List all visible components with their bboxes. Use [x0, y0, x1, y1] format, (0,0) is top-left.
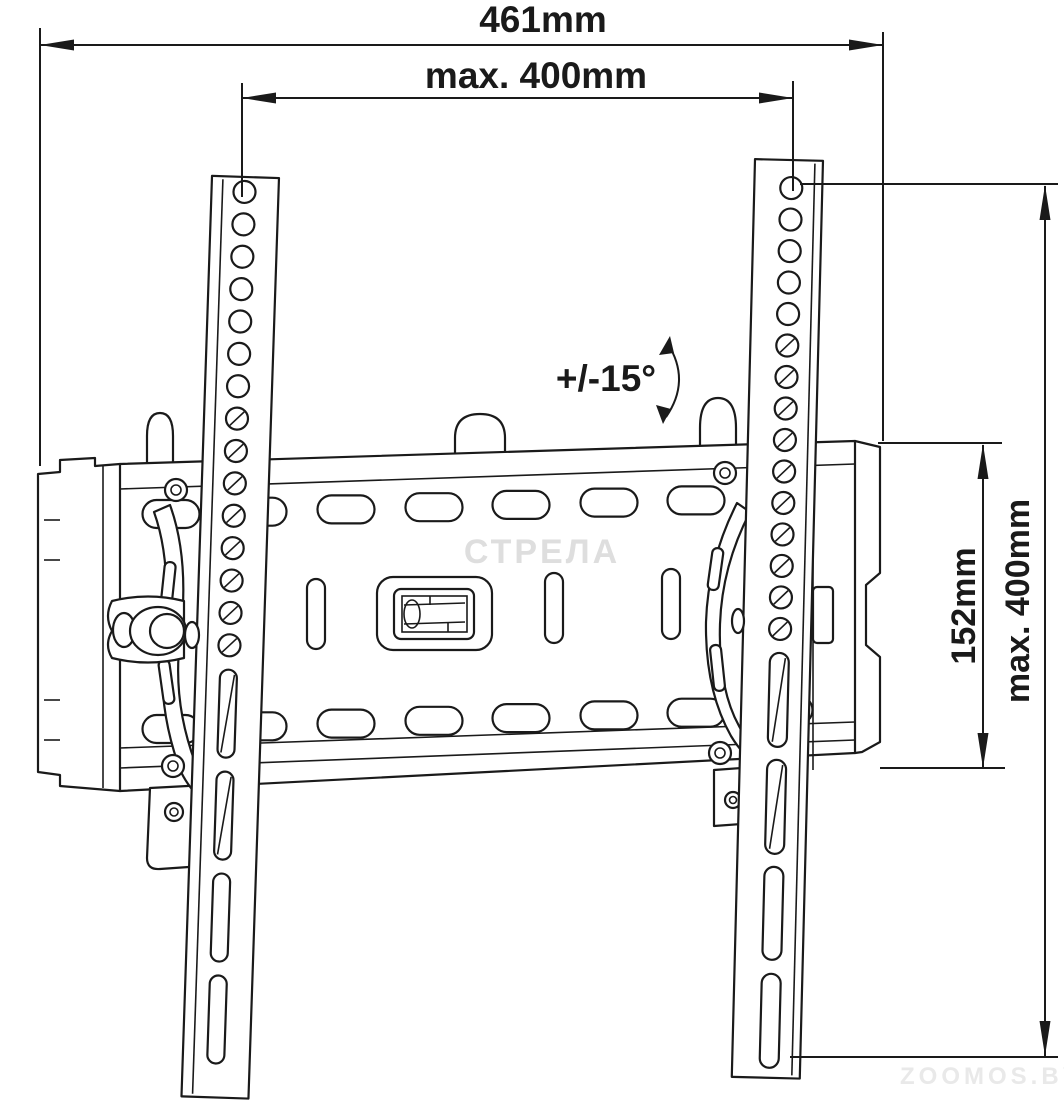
vesa-adapter-block — [377, 577, 492, 650]
hole-span-dimension: max. 400mm — [242, 55, 793, 197]
tilt-angle-label: +/-15° — [556, 358, 656, 399]
top-width-label: 461mm — [479, 0, 607, 40]
plate-height-dimension: 152mm — [878, 443, 1005, 768]
right-ear — [700, 398, 736, 448]
technical-drawing-canvas: СТРЕЛА — [0, 0, 1064, 1104]
wall-mount-diagram: СТРЕЛА — [0, 0, 1064, 1104]
tilt-angle-annotation: +/-15° — [556, 336, 679, 424]
right-shaft-end — [732, 609, 744, 633]
left-inner-ear — [455, 414, 505, 456]
bottom-watermark: ZOOMOS.BY — [900, 1063, 1064, 1090]
right-vesa-rail — [732, 159, 823, 1078]
left-shaft-end — [185, 622, 199, 648]
plate-height-label: 152mm — [945, 547, 983, 664]
left-outer-ear — [147, 413, 173, 464]
center-watermark: СТРЕЛА — [464, 533, 620, 571]
hole-span-label: max. 400mm — [425, 55, 647, 96]
side-hole-span-label: max. 400mm — [999, 499, 1037, 703]
tilt-arc-arrow — [666, 344, 679, 417]
tension-knob — [108, 597, 186, 663]
right-tab — [813, 587, 833, 643]
